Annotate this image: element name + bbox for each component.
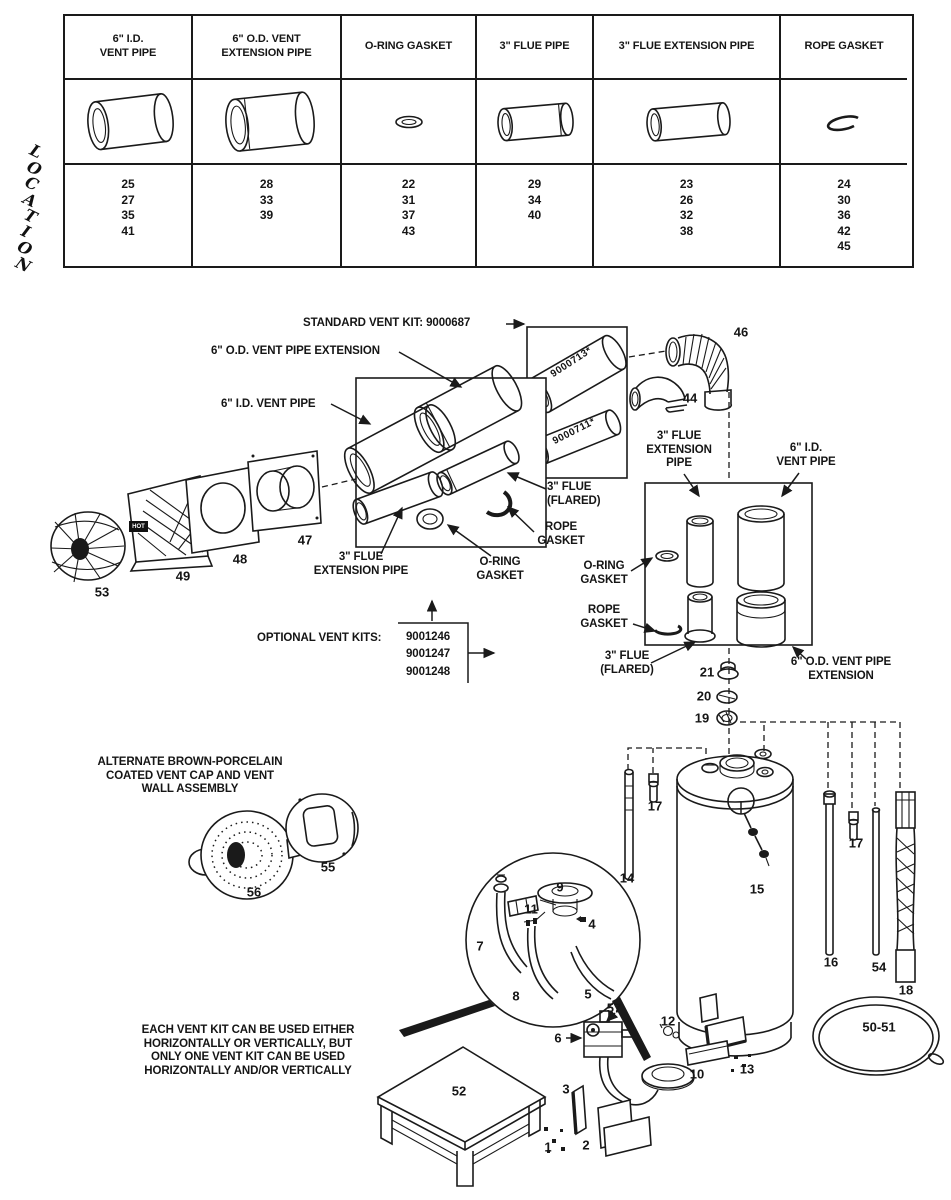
- label-rope-gasket-left: ROPE GASKET: [537, 521, 584, 548]
- item-number-1: 1: [544, 1140, 551, 1155]
- label-optional-kit-numbers: 9001246 9001247 9001248: [406, 629, 450, 681]
- item-number-21: 21: [700, 665, 714, 680]
- gas-valve-burner: [584, 1011, 694, 1105]
- alternate-vent-cap: [189, 794, 358, 899]
- item-number-55: 55: [321, 860, 335, 875]
- wall-plate-47: [248, 451, 321, 531]
- item-number-18: 18: [899, 983, 913, 998]
- label-id-vent-pipe-right: 6" I.D. VENT PIPE: [776, 442, 835, 469]
- item-number-46: 46: [734, 325, 748, 340]
- label-id-vent-pipe: 6" I.D. VENT PIPE: [221, 398, 316, 412]
- item-number-2: 2: [582, 1138, 589, 1153]
- diagram-artwork: [0, 0, 951, 1200]
- label-flue-flared-right: 3" FLUE (FLARED): [600, 650, 654, 677]
- item-number-17-right: 17: [849, 836, 863, 851]
- item-number-6: 6: [554, 1031, 561, 1046]
- water-heater-tank: [660, 750, 793, 1073]
- item-number-7: 7: [476, 939, 483, 954]
- label-standard-vent-kit: STANDARD VENT KIT: 9000687: [303, 317, 470, 331]
- item-number-12: 12: [661, 1014, 675, 1029]
- item-number-9: 9: [556, 880, 563, 895]
- item-number-8: 8: [512, 989, 519, 1004]
- label-flue-flared-left: 3" FLUE (FLARED): [547, 481, 601, 508]
- item-number-10: 10: [690, 1067, 704, 1082]
- vent-kit-box-horizontal: [339, 362, 546, 547]
- label-od-vent-pipe-extension: 6" O.D. VENT PIPE EXTENSION: [211, 345, 380, 359]
- item-number-4: 4: [588, 917, 595, 932]
- item-number-52: 52: [452, 1084, 466, 1099]
- elbow-44: [630, 377, 687, 412]
- item-number-14: 14: [620, 871, 634, 886]
- item-number-16: 16: [824, 955, 838, 970]
- label-alternate-cap: ALTERNATE BROWN-PORCELAIN COATED VENT CA…: [98, 756, 283, 797]
- item-number-15: 15: [750, 882, 764, 897]
- label-optional-vent-kits: OPTIONAL VENT KITS:: [257, 632, 381, 646]
- item-number-49: 49: [176, 569, 190, 584]
- vent-cap-cage-53: [51, 512, 125, 582]
- item-number-47: 47: [298, 533, 312, 548]
- hot-stamp-label: HOT: [129, 521, 148, 532]
- item-number-48: 48: [233, 552, 247, 567]
- anode-rods: [625, 770, 915, 983]
- item-number-19: 19: [695, 711, 709, 726]
- wall-plate-48: [186, 467, 259, 553]
- item-number-3: 3: [562, 1082, 569, 1097]
- label-flue-extension-pipe-left: 3" FLUE EXTENSION PIPE: [314, 551, 408, 578]
- label-rope-gasket-right: ROPE GASKET: [580, 604, 627, 631]
- item-number-17-left: 17: [648, 799, 662, 814]
- item-number-13: 13: [740, 1062, 754, 1077]
- corrugated-elbow-46: [666, 334, 731, 410]
- parts-diagram-page: LOCATION 6" I.D. VENT PIPE 6" O.D. VENT …: [0, 0, 951, 1200]
- label-flue-extension-pipe-right: 3" FLUE EXTENSION PIPE: [646, 430, 712, 471]
- item-number-5: 5: [584, 987, 591, 1002]
- base-ring-50-51: [813, 997, 945, 1075]
- item-number-44: 44: [683, 391, 697, 406]
- label-oring-gasket-right: O-RING GASKET: [580, 560, 627, 587]
- small-parts-1-2-3: [544, 1086, 651, 1156]
- item-number-50-51: 50-51: [862, 1020, 895, 1035]
- stand-table-52: [378, 1047, 545, 1186]
- label-od-ext-right: 6" O.D. VENT PIPE EXTENSION: [791, 656, 891, 683]
- item-number-20: 20: [697, 689, 711, 704]
- item-number-54: 54: [872, 960, 886, 975]
- label-usage-note: EACH VENT KIT CAN BE USED EITHER HORIZON…: [142, 1024, 355, 1078]
- item-number-11: 11: [524, 902, 538, 917]
- item-number-53: 53: [95, 585, 109, 600]
- vent-kit-box-vertical: [645, 483, 812, 647]
- label-oring-gasket-left: O-RING GASKET: [476, 556, 523, 583]
- flue-collar-rings: [717, 662, 738, 725]
- item-number-56: 56: [247, 885, 261, 900]
- item-number-57: 57: [607, 1001, 621, 1016]
